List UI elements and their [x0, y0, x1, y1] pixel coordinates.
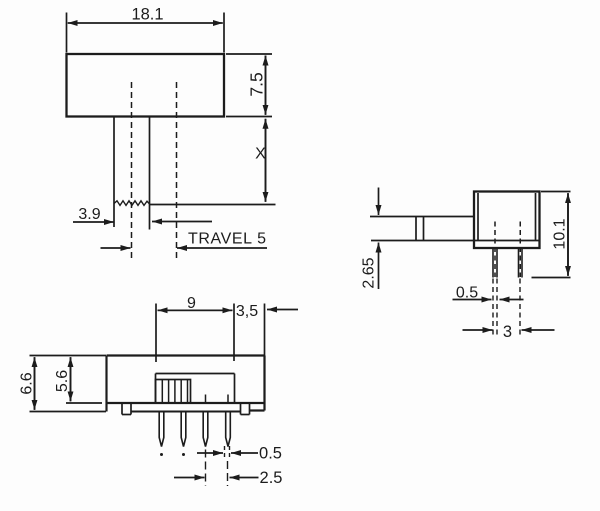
svg-text:6.6: 6.6: [19, 372, 36, 394]
svg-text:7.5: 7.5: [247, 72, 267, 96]
svg-text:2.65: 2.65: [361, 257, 378, 288]
svg-text:3: 3: [503, 323, 512, 341]
svg-text:2.5: 2.5: [260, 469, 283, 487]
svg-text:18.1: 18.1: [131, 6, 163, 24]
svg-text:3.9: 3.9: [78, 206, 100, 223]
svg-text:9: 9: [187, 295, 196, 312]
svg-text:0.5: 0.5: [259, 445, 282, 463]
svg-text:10.1: 10.1: [552, 218, 569, 249]
svg-text:3,5: 3,5: [236, 303, 258, 320]
svg-text:X: X: [255, 146, 266, 163]
svg-text:TRAVEL 5: TRAVEL 5: [188, 231, 267, 248]
svg-text:0.5: 0.5: [456, 285, 478, 302]
svg-text:5.6: 5.6: [54, 370, 71, 392]
